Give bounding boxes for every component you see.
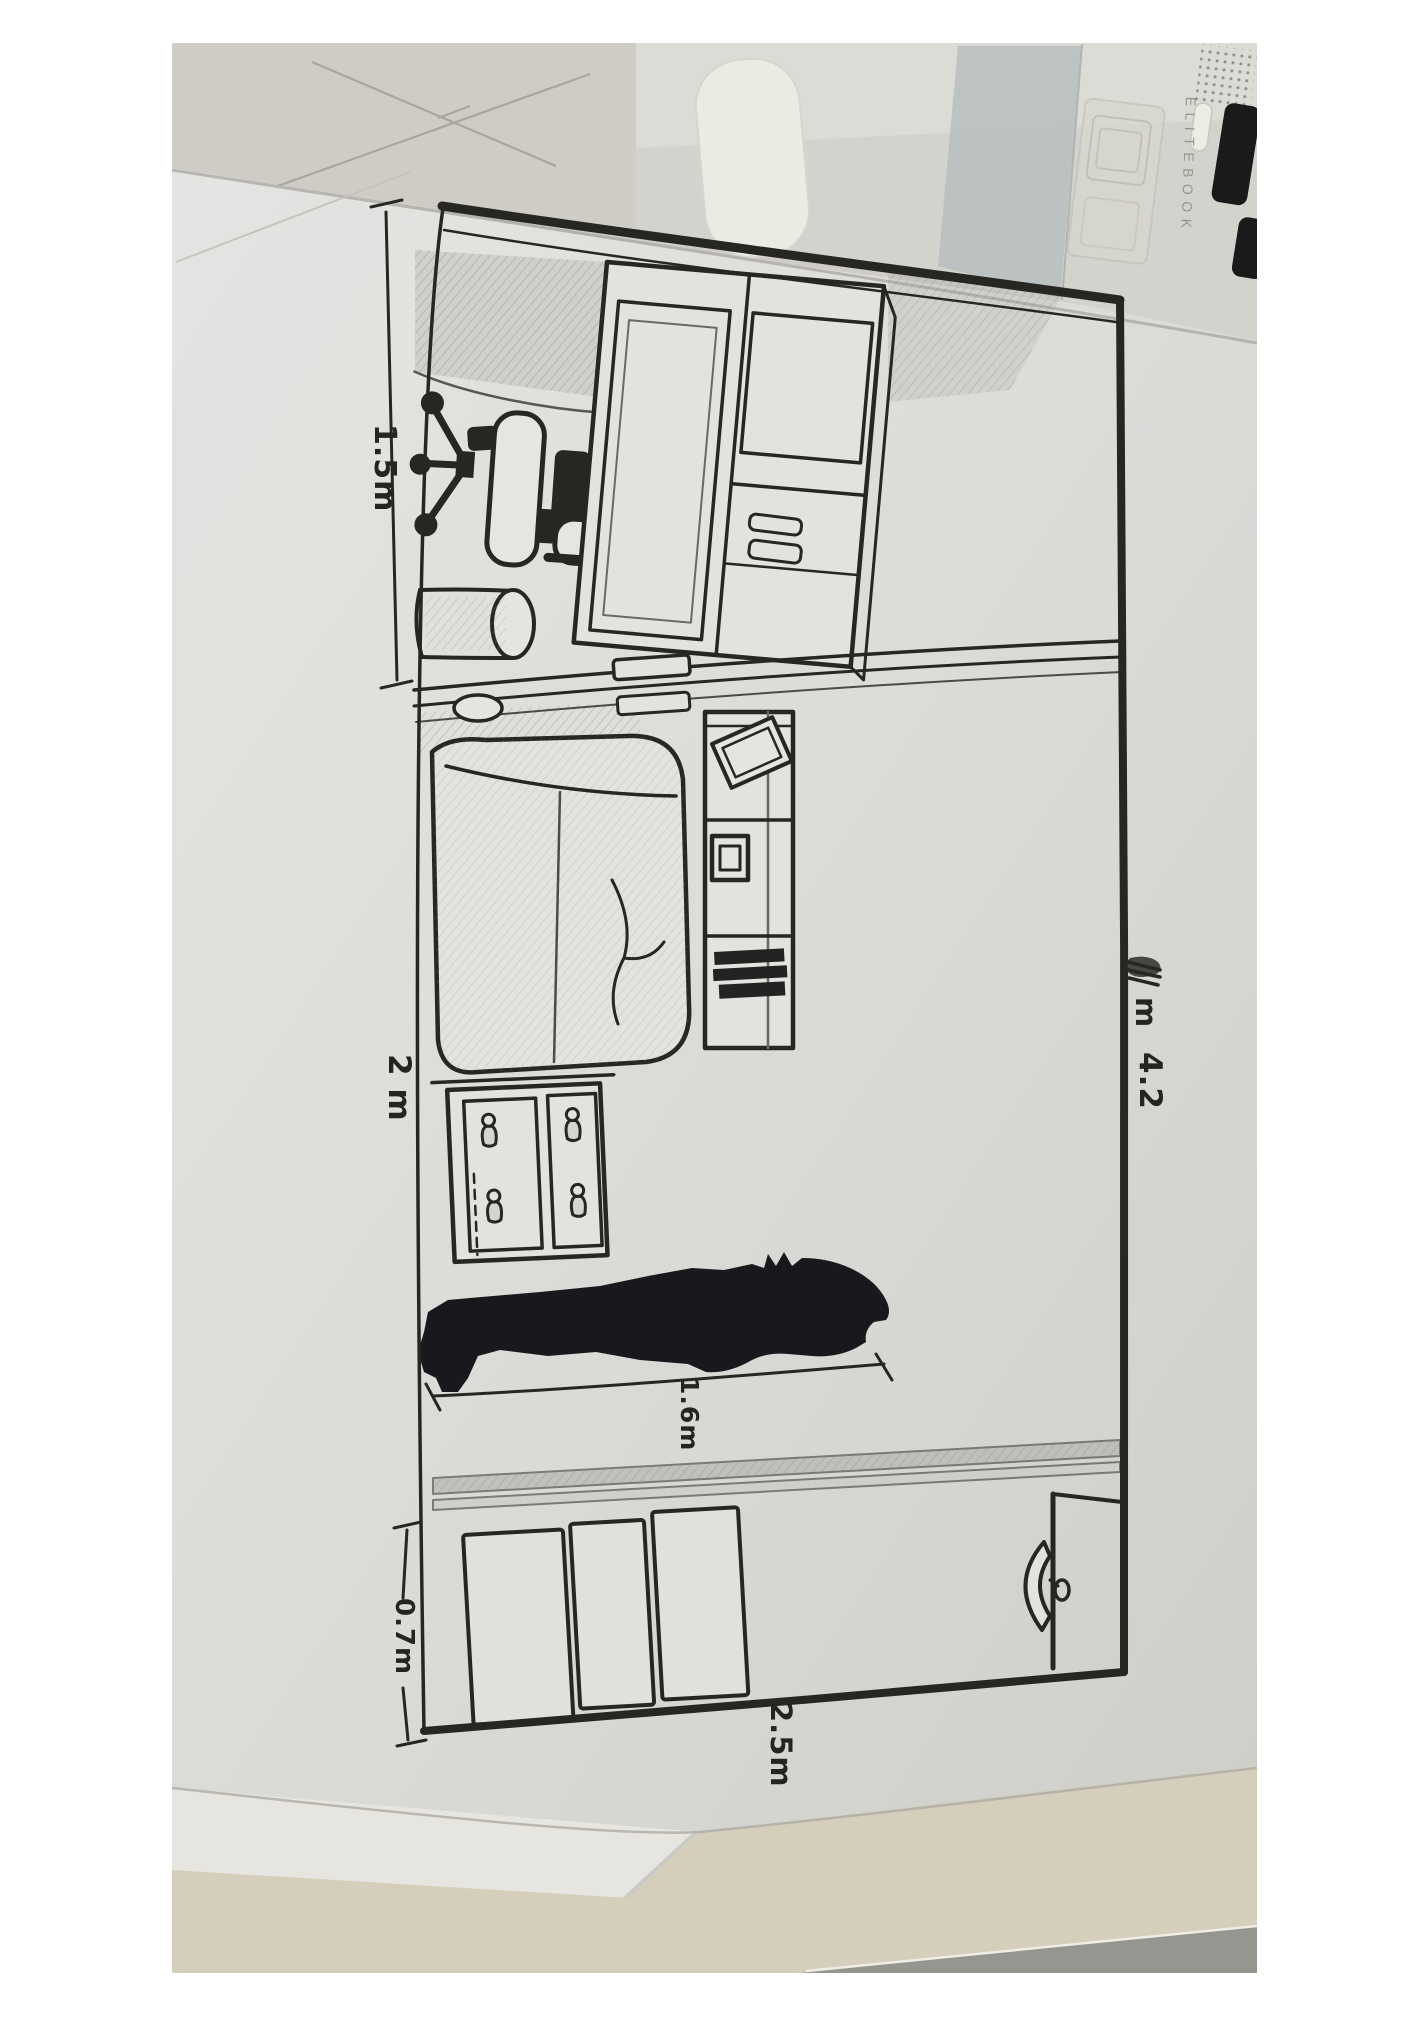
label-room-length: 4.2 bbox=[1134, 1052, 1165, 1110]
photo-of-floor-plan-sketch: 1.5m 2 m m 4.2 1.6m 0.7m 2.5m ELITEBOOK bbox=[0, 0, 1428, 2028]
label-living-width: 2 m bbox=[383, 1054, 414, 1122]
label-office-width: 1.5m bbox=[369, 424, 399, 512]
label-entry-wall: 2.5m bbox=[766, 1702, 795, 1788]
scene-canvas bbox=[0, 0, 1428, 2028]
label-room-length-unit: m bbox=[1131, 997, 1160, 1028]
label-person-height: 1.6m bbox=[677, 1377, 702, 1451]
label-closet-depth: 0.7m bbox=[391, 1598, 417, 1675]
